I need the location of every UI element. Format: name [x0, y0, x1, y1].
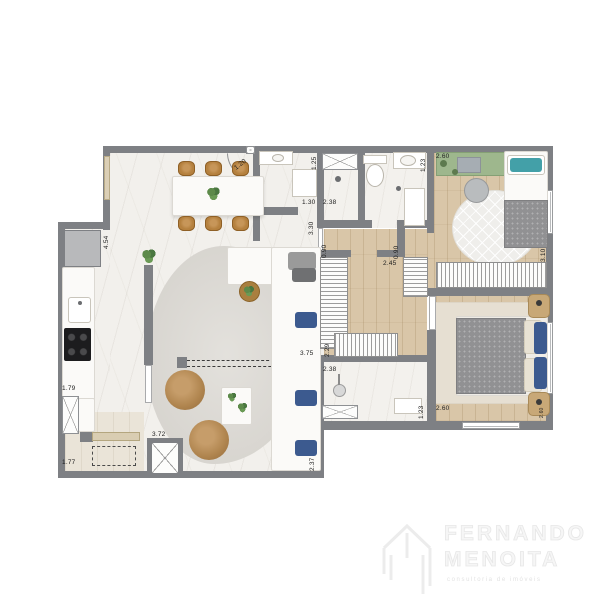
hall-basin-bowl: [272, 154, 284, 162]
bath2-shower-bench: [404, 188, 425, 226]
laundry-cabinet: [62, 396, 79, 434]
brand-logo: FERNANDO MENOITA consultoria de imóveis: [374, 514, 594, 596]
dim-kitchen-cabinet: 1.79: [62, 385, 75, 392]
wall-bath2-right: [427, 153, 434, 233]
master-blanket: [456, 318, 526, 394]
sofa-pillow-blue: [295, 390, 317, 406]
ensuite-basin-icon: [333, 384, 346, 397]
closet-wardrobe-right: [403, 257, 428, 297]
brand-monogram-icon: [374, 516, 438, 596]
suite-bottom-window: [462, 422, 520, 429]
laundry-future-appliance: [92, 446, 136, 466]
bath2-toilet-bowl-icon: [366, 164, 384, 187]
side-table-plant-icon: [243, 285, 255, 297]
hall-cabinet: [292, 169, 317, 197]
dim-ensuite-depth: 1.23: [418, 406, 425, 419]
dining-stool: [205, 161, 222, 176]
sofa-pillow-blue: [295, 312, 317, 328]
wall-terrace-stub: [177, 357, 187, 368]
dim-bedroom1-depth: 3.10: [540, 249, 547, 262]
kitchen-door-leaf: [145, 365, 152, 403]
wall-living-bottom: [58, 471, 324, 478]
bedroom1-wardrobe: [436, 262, 547, 288]
dim-closet-depth: 2.29: [324, 344, 331, 357]
wall-kitchen-island: [144, 265, 153, 365]
dim-hall-corridor: 3.30: [308, 222, 315, 235]
dining-stool: [205, 216, 222, 231]
ensuite-shower-box: [322, 405, 358, 419]
wall-closet-top-b: [377, 250, 405, 257]
brand-name-line2: MENOITA: [444, 548, 560, 572]
master-pillow-blue: [534, 322, 547, 354]
dim-hall-width: 1.25: [311, 157, 318, 170]
kitchen-counter-return: [78, 398, 95, 432]
dining-stool: [178, 216, 195, 231]
terrace-armchair: [165, 370, 205, 410]
bedroom1-teal-pillow: [510, 158, 542, 172]
ensuite-basin-stem: [338, 374, 340, 385]
desk-object: [452, 169, 458, 175]
bath2-showerhead-icon: [396, 186, 401, 191]
dining-left-window: [104, 156, 110, 200]
coffee-table-plant-icon: [227, 392, 237, 402]
dim-desk-width: 2.60: [436, 153, 449, 160]
terrace-slider-track-1: [187, 360, 279, 361]
dim-hall-depth: 1.30: [302, 199, 315, 206]
entry-door-marker-icon: [246, 146, 255, 154]
brand-name-line1: FERNANDO: [444, 522, 587, 546]
master-door-leaf: [429, 296, 436, 330]
wall-master-left: [427, 330, 436, 425]
nightstand-lamp-icon: [536, 300, 542, 306]
bath1-showerhead-icon: [335, 176, 341, 182]
coffee-table-plant-icon: [237, 402, 248, 413]
service-shaft: [147, 438, 183, 478]
dim-terrace-depth: 2.37: [309, 458, 316, 471]
floor-doorway-strip: [427, 229, 434, 293]
brand-tagline: consultoria de imóveis: [447, 577, 542, 583]
sofa-pillow-dark: [292, 268, 316, 282]
bath1-shower-box: [322, 153, 358, 170]
kitchen-faucet-icon: [78, 301, 82, 305]
closet-wardrobe-bottom: [334, 333, 398, 357]
island-plant-icon: [141, 248, 157, 264]
dim-laundry-width: 1.77: [62, 459, 75, 466]
dim-bath2-width: 1.23: [420, 159, 427, 172]
bath2-toilet-tank: [363, 155, 387, 164]
dim-living-length: 3.72: [152, 431, 165, 438]
sofa-chaise: [227, 247, 273, 285]
floorplan-canvas: 1.20 1.25 1.23 2.60 1.30 2.38 3.30 4.54 …: [0, 0, 600, 600]
terrace-armchair: [189, 420, 229, 460]
dim-corridor-door-left: 0.90: [321, 245, 328, 258]
dim-ensuite-width: 2.38: [323, 366, 336, 373]
master-pillow-blue: [534, 357, 547, 389]
desk-chair-icon: [464, 178, 489, 203]
bedroom1-blanket: [504, 200, 548, 248]
dim-kitchen-length: 4.54: [103, 236, 110, 249]
desk-object: [440, 160, 447, 167]
master-nightstand: [528, 294, 550, 318]
bath2-basin-bowl: [400, 155, 416, 166]
sofa-pillow-blue: [295, 440, 317, 456]
desk-laptop-icon: [457, 157, 481, 173]
dim-master-side: 2.60: [539, 407, 546, 418]
dim-corridor-length: 2.45: [383, 260, 396, 267]
laundry-sliding-door: [92, 432, 140, 441]
dim-master-width: 2.60: [436, 405, 449, 412]
dim-living-width: 3.75: [300, 350, 313, 357]
wall-hall-bottom: [258, 207, 298, 215]
dim-corridor-door-right: 0.90: [393, 246, 400, 259]
dining-stool: [178, 161, 195, 176]
dim-bath1-width: 2.38: [323, 199, 336, 206]
wall-bed1-master: [427, 288, 546, 296]
nightstand-lamp-icon: [536, 399, 542, 405]
kitchen-cooktop-icon: [64, 328, 91, 361]
dining-table-plant-icon: [206, 186, 221, 201]
dining-stool: [232, 216, 249, 231]
kitchen-shaft: [64, 230, 101, 267]
